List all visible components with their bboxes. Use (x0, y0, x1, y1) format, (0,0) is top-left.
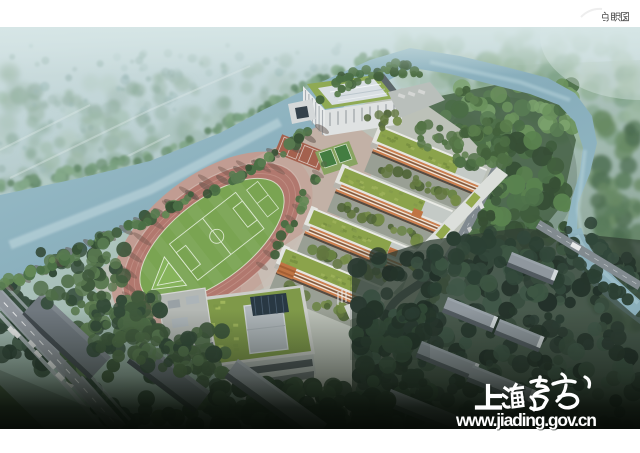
svg-text:www.jiading.gov.cn: www.jiading.gov.cn (455, 410, 597, 430)
